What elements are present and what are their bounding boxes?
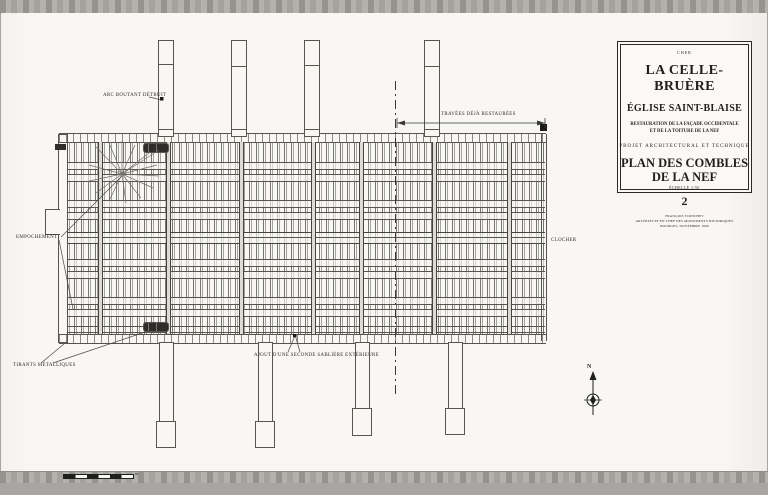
buttress-south-4-foot [445, 408, 465, 435]
buttress-south-1 [159, 342, 174, 423]
scale-note: ÉCHELLE 1/50 [618, 186, 751, 190]
west-gable-wall [58, 134, 68, 343]
east-wall-edge [541, 134, 547, 341]
principal-rafter [311, 142, 316, 334]
scanner-edge-top [0, 0, 768, 14]
scale-unit-label: m [135, 471, 138, 476]
buttress-north-2 [231, 40, 247, 137]
principal-rafter [359, 142, 364, 334]
drawing-title-line-1: PLAN DES COMBLES [618, 157, 751, 171]
dimension-line [397, 118, 545, 128]
south-wall-plate [59, 334, 546, 344]
commune-title: LA CELLE-BRUÈRE [618, 63, 751, 95]
purlin-band [67, 162, 545, 170]
north-label: N [587, 364, 591, 370]
ridge-band [67, 232, 545, 244]
buttress-north-1 [158, 40, 174, 137]
project-line-1: RESTAURATION DE LA FAÇADE OCCIDENTALE [618, 121, 751, 128]
label-tirants: TIRANTS MÉTALLIQUES [13, 363, 76, 369]
buttress-south-4 [448, 342, 463, 410]
label-arc-boutant: ARC BOUTANT DÉTRUIT [103, 93, 166, 99]
project-line-2: ET DE LA TOITURE DE LA NEF [618, 128, 751, 135]
principal-rafter [98, 142, 103, 334]
wall-pocket [45, 209, 60, 235]
principal-rafter [239, 142, 244, 334]
tie-rod-anchor-north [144, 144, 168, 152]
drawing-title-line-2: DE LA NEF [618, 171, 751, 185]
purlin-band [67, 309, 545, 317]
department-label: CHER [618, 50, 751, 55]
purlin-band [67, 200, 545, 208]
label-empochement: EMPOCHEMENT [16, 235, 57, 241]
buttress-south-1-foot [156, 421, 176, 448]
scale-bar [63, 474, 134, 479]
dimension-end-marker [540, 124, 547, 131]
buttress-north-3 [304, 40, 320, 137]
purlin-band [67, 259, 545, 267]
label-clocher: CLOCHER [551, 238, 576, 244]
buttress-south-2-foot [255, 421, 275, 448]
buttress-north-4 [424, 40, 440, 137]
building-title: ÉGLISE SAINT-BLAISE [618, 103, 751, 114]
restoration-limit-axis [395, 81, 396, 395]
credit-line-3: BOURGES, NOVEMBRE 1996 [618, 224, 751, 229]
inner-plate-line [67, 326, 545, 333]
principal-rafter [432, 142, 437, 334]
sheet-number: 2 [618, 194, 751, 209]
label-sabliere: AJOUT D'UNE SECONDE SABLIÈRE EXTÉRIEURE [254, 353, 379, 359]
title-block: CHER LA CELLE-BRUÈRE ÉGLISE SAINT-BLAISE… [617, 41, 752, 193]
principal-rafter [166, 142, 171, 334]
purlin-band [67, 271, 545, 279]
purlin-band [67, 297, 545, 305]
phase-label: PROJET ARCHITECTURAL ET TECHNIQUE [618, 144, 751, 149]
north-arrow-icon [584, 371, 602, 415]
tie-rod-anchor-west [55, 144, 66, 150]
tie-rod-anchor-south [144, 323, 168, 331]
drawing-sheet: ARC BOUTANT DÉTRUIT TRAVÉES DÉJÀ RESTAUR… [1, 13, 767, 471]
purlin-band [67, 174, 545, 182]
label-travees: TRAVÉES DÉJÀ RESTAURÉES [441, 112, 516, 118]
buttress-south-3-foot [352, 408, 372, 436]
principal-rafter [507, 142, 512, 334]
purlin-band [67, 212, 545, 220]
